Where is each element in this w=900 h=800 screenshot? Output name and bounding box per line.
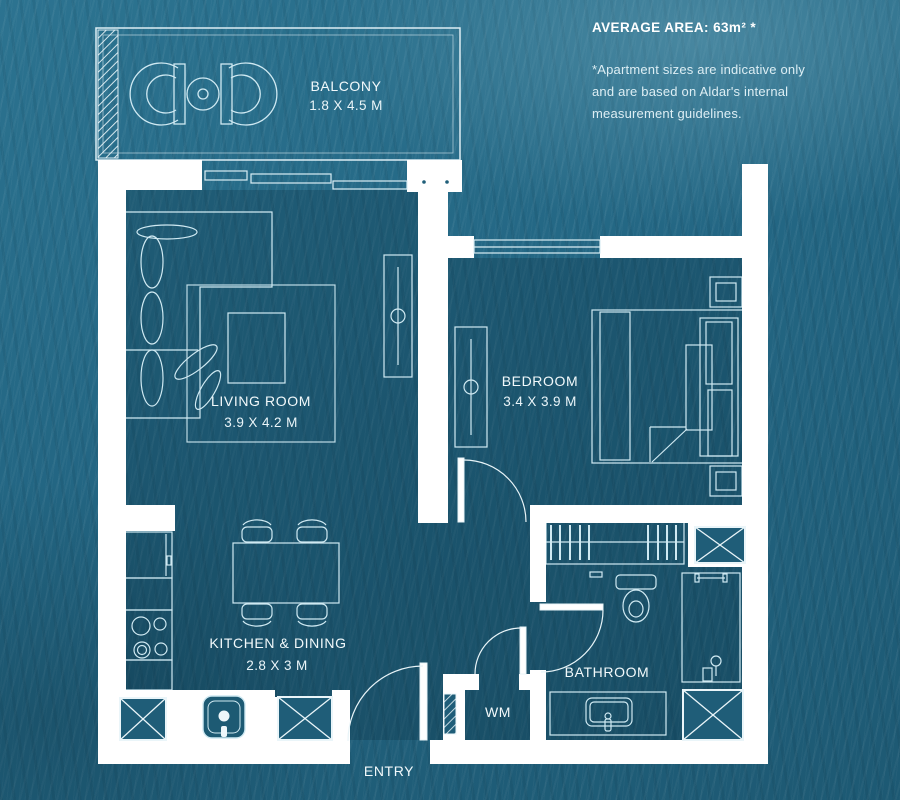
balcony-chair-right <box>229 63 277 125</box>
wall-kitchen-stub <box>98 505 175 531</box>
balcony-chair-left <box>130 63 178 125</box>
wall-top-left <box>98 160 202 190</box>
bedroom-label: BEDROOM <box>502 373 579 389</box>
entry-label: ENTRY <box>364 763 414 779</box>
disclaimer-line-3: measurement guidelines. <box>592 103 882 125</box>
wall-right <box>742 164 768 764</box>
wall-bathroom-left-upper <box>530 505 546 602</box>
living-room-label: LIVING ROOM <box>211 393 311 409</box>
disclaimer-line-1: *Apartment sizes are indicative only <box>592 59 882 81</box>
wm-door-jamb-hatch-lines <box>444 694 456 734</box>
balcony-dimensions: 1.8 X 4.5 M <box>309 98 382 113</box>
kitchen-dining-dimensions: 2.8 X 3 M <box>246 658 307 673</box>
wall-bottom-right <box>430 740 768 764</box>
average-area-title: AVERAGE AREA: 63m² * <box>592 20 882 35</box>
living-room-dimensions: 3.9 X 4.2 M <box>224 415 297 430</box>
kitchen-dining-label: KITCHEN & DINING <box>209 635 346 651</box>
info-panel: AVERAGE AREA: 63m² * *Apartment sizes ar… <box>592 20 882 125</box>
shaft-kitchen-right <box>278 697 332 740</box>
kitchen-sink <box>203 696 245 738</box>
bedroom-dimensions: 3.4 X 3.9 M <box>503 394 576 409</box>
bathroom-label: BATHROOM <box>565 664 650 680</box>
wall-left <box>98 160 126 764</box>
balcony-sliding-door <box>205 171 407 189</box>
disclaimer-line-2: and are based on Aldar's internal <box>592 81 882 103</box>
shaft-bathroom <box>683 690 743 740</box>
bedroom-window <box>474 240 600 253</box>
balcony-label: BALCONY <box>310 78 381 94</box>
wall-bottom-left <box>98 740 350 764</box>
floor-plan-scene: BALCONY 1.8 X 4.5 M LIVING ROOM 3.9 X 4.… <box>0 0 900 800</box>
wall-wm-jamb <box>519 674 530 690</box>
wall-bedroom-top <box>600 236 742 258</box>
shaft-kitchen-left <box>120 698 166 740</box>
wall-entry-jamb <box>332 690 350 740</box>
wm-label: WM <box>485 704 511 720</box>
wall-bathroom-left-lower <box>530 670 546 740</box>
balcony-outline <box>96 28 460 160</box>
balcony-table <box>187 78 219 110</box>
shaft-bedroom <box>695 527 745 563</box>
wall-central <box>418 160 448 523</box>
balcony-furniture <box>130 63 277 125</box>
wall-bedroom-top-stub <box>448 236 474 258</box>
